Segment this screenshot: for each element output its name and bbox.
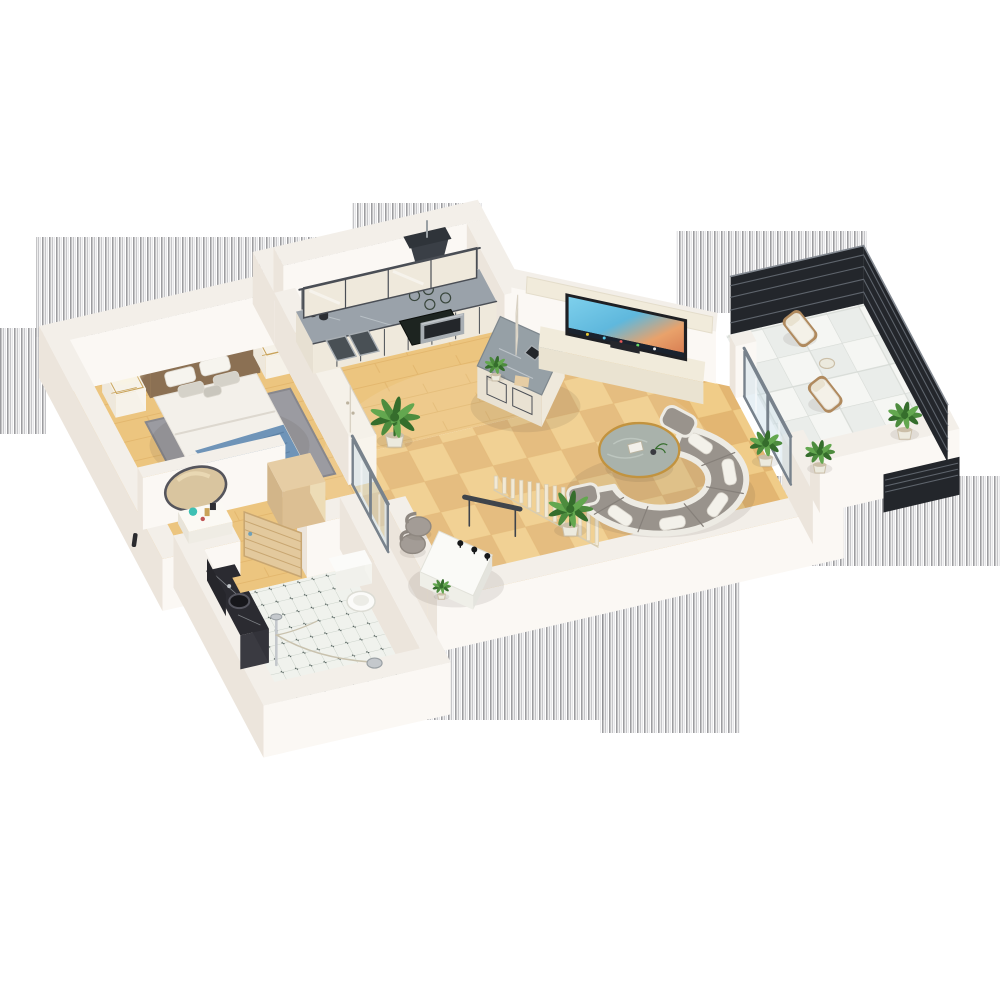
desk-mic bbox=[457, 540, 463, 546]
desk-mic bbox=[471, 546, 477, 552]
stair-slat bbox=[494, 476, 498, 489]
handle bbox=[351, 412, 354, 415]
stair-slat bbox=[536, 483, 540, 513]
floorplan-render bbox=[0, 0, 1000, 1000]
table-decor bbox=[650, 449, 656, 455]
stair-slat bbox=[503, 477, 507, 493]
stair-slat bbox=[528, 482, 532, 508]
floorplan-stage bbox=[0, 0, 1000, 1000]
stair-slat bbox=[511, 479, 515, 499]
round-sink bbox=[229, 594, 249, 608]
door-handle bbox=[248, 532, 252, 536]
stair-slat bbox=[519, 480, 523, 503]
balcony-side-table bbox=[820, 358, 835, 368]
stair-slat bbox=[545, 484, 549, 517]
tv-app-icon bbox=[653, 347, 656, 350]
stripe-band bbox=[0, 328, 46, 434]
faucet bbox=[227, 584, 231, 588]
tv-app-icon bbox=[603, 337, 606, 340]
shower-plate bbox=[367, 658, 382, 668]
round-coffee-table bbox=[599, 423, 679, 482]
tv-app-icon bbox=[586, 333, 589, 336]
desk-mic bbox=[484, 553, 490, 559]
handle bbox=[346, 401, 349, 404]
desk-chair bbox=[406, 517, 431, 536]
